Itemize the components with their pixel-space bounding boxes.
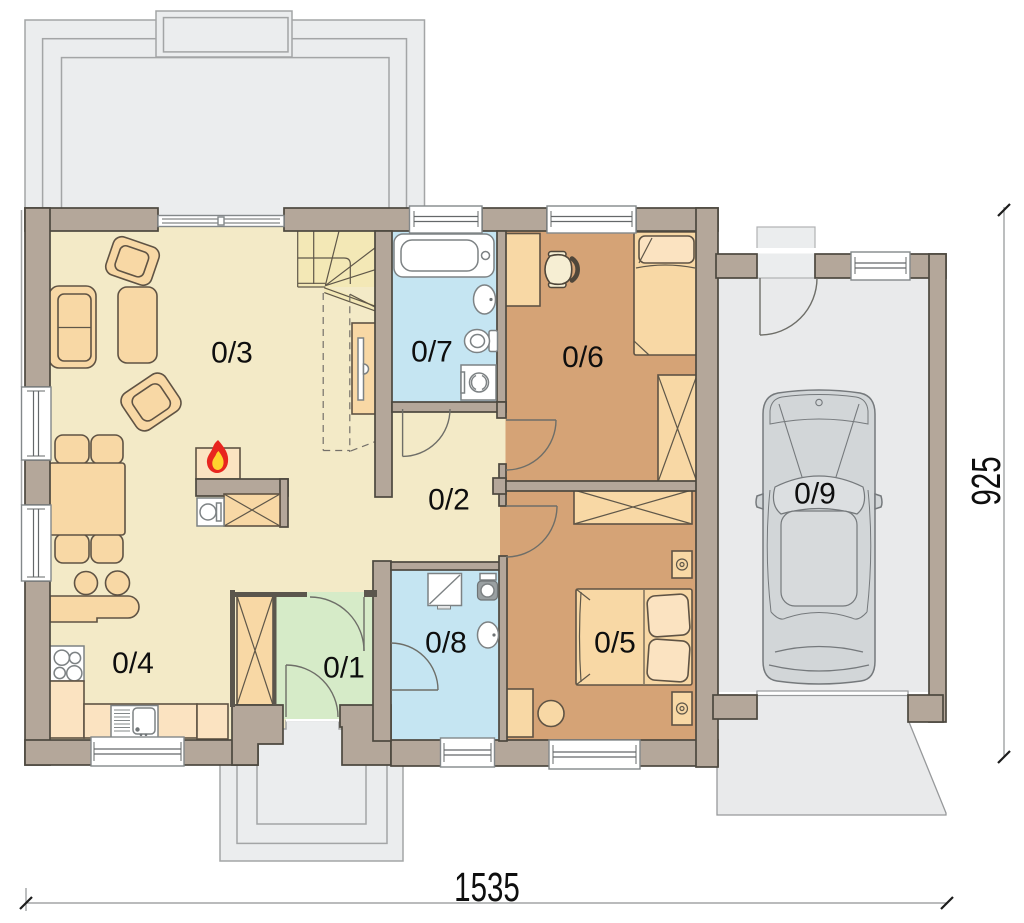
svg-text:0/7: 0/7 [411,336,453,369]
svg-text:925: 925 [963,456,1009,505]
svg-text:0/2: 0/2 [428,484,470,517]
svg-text:1535: 1535 [454,864,520,910]
svg-text:0/4: 0/4 [112,647,154,680]
svg-text:0/8: 0/8 [425,627,467,660]
svg-text:0/1: 0/1 [323,652,365,685]
svg-text:0/6: 0/6 [562,341,604,374]
svg-text:0/9: 0/9 [794,478,836,511]
svg-text:0/3: 0/3 [211,337,253,370]
svg-text:0/5: 0/5 [594,627,636,660]
